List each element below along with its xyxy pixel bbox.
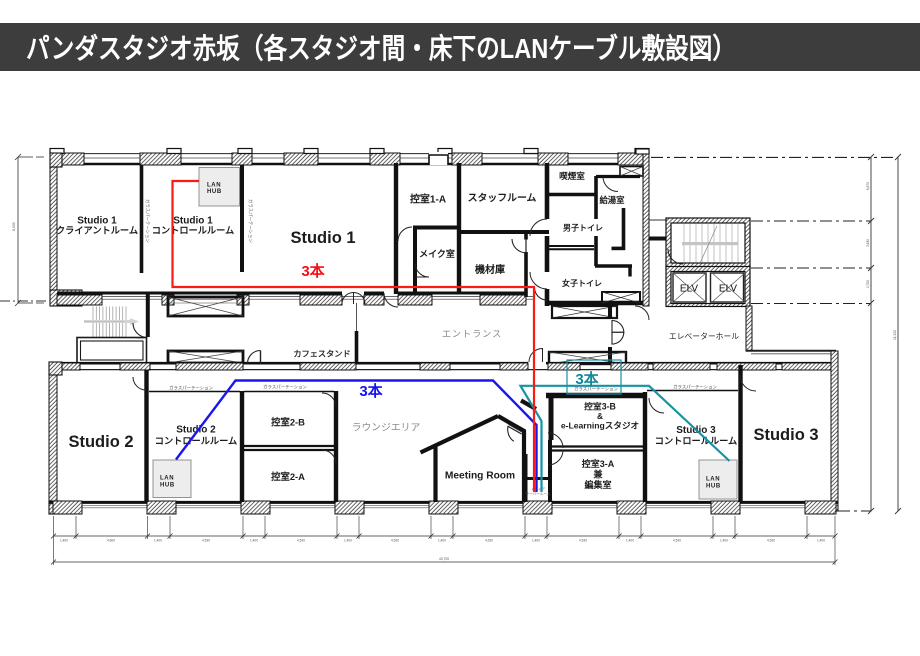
svg-text:6,870: 6,870 bbox=[866, 182, 870, 190]
svg-text:21,320: 21,320 bbox=[893, 330, 897, 340]
svg-text:4,600: 4,600 bbox=[107, 539, 115, 543]
svg-text:8,000: 8,000 bbox=[12, 222, 16, 231]
svg-text:1,400: 1,400 bbox=[720, 539, 728, 543]
svg-text:メイク室: メイク室 bbox=[419, 248, 455, 259]
svg-text:ELV: ELV bbox=[680, 284, 698, 295]
svg-text:女子トイレ: 女子トイレ bbox=[562, 278, 602, 288]
svg-text:4,530: 4,530 bbox=[391, 539, 399, 543]
svg-text:サーバールーム: サーバールーム bbox=[525, 491, 550, 496]
svg-text:控室2-B: 控室2-B bbox=[271, 417, 305, 428]
svg-text:編集室: 編集室 bbox=[584, 479, 611, 490]
svg-text:LAN: LAN bbox=[706, 477, 720, 483]
svg-text:控室3-B: 控室3-B bbox=[584, 401, 616, 412]
svg-text:ELV: ELV bbox=[719, 284, 737, 295]
svg-text:コントロールルーム: コントロールルーム bbox=[655, 436, 737, 446]
svg-text:1,400: 1,400 bbox=[60, 539, 68, 543]
svg-text:4,530: 4,530 bbox=[579, 539, 587, 543]
svg-text:ガラスパーテーション: ガラスパーテーション bbox=[247, 199, 254, 243]
svg-text:4,530: 4,530 bbox=[202, 539, 210, 543]
svg-text:1,400: 1,400 bbox=[344, 539, 352, 543]
svg-text:3本: 3本 bbox=[301, 262, 324, 280]
svg-text:男子トイレ: 男子トイレ bbox=[563, 224, 603, 233]
svg-text:パンダスタジオ赤坂（各スタジオ間・床下のLANケーブル敷設図: パンダスタジオ赤坂（各スタジオ間・床下のLANケーブル敷設図） bbox=[26, 32, 736, 64]
svg-text:1,400: 1,400 bbox=[250, 539, 258, 543]
svg-text:ガラスパーテーション: ガラスパーテーション bbox=[144, 199, 151, 243]
svg-text:3本: 3本 bbox=[359, 382, 382, 400]
svg-text:控室2-A: 控室2-A bbox=[271, 471, 305, 482]
svg-text:コントロールルーム: コントロールルーム bbox=[152, 226, 234, 236]
svg-text:1,400: 1,400 bbox=[438, 539, 446, 543]
svg-text:Meeting Room: Meeting Room bbox=[445, 471, 515, 482]
svg-text:e-Learningスタジオ: e-Learningスタジオ bbox=[561, 420, 639, 431]
svg-text:給湯室: 給湯室 bbox=[599, 195, 625, 205]
svg-text:3本: 3本 bbox=[575, 370, 598, 388]
svg-text:1,400: 1,400 bbox=[532, 539, 540, 543]
svg-text:LAN: LAN bbox=[160, 476, 174, 482]
svg-text:43,700: 43,700 bbox=[439, 557, 449, 561]
svg-text:ラウンジエリア: ラウンジエリア bbox=[352, 422, 421, 434]
svg-text:4,530: 4,530 bbox=[485, 539, 493, 543]
svg-text:Studio 3: Studio 3 bbox=[753, 426, 818, 444]
svg-text:1,400: 1,400 bbox=[154, 539, 162, 543]
svg-text:4,530: 4,530 bbox=[673, 539, 681, 543]
svg-text:カフェスタンド: カフェスタンド bbox=[293, 349, 350, 359]
svg-text:Studio 1: Studio 1 bbox=[290, 229, 355, 247]
svg-text:コントロールルーム: コントロールルーム bbox=[155, 436, 237, 446]
svg-text:2,700: 2,700 bbox=[866, 280, 870, 288]
svg-text:ガラスパーテーション: ガラスパーテーション bbox=[169, 385, 213, 392]
svg-text:ガラスパーテーション: ガラスパーテーション bbox=[263, 384, 307, 391]
svg-text:HUB: HUB bbox=[160, 483, 175, 489]
svg-text:&: & bbox=[597, 411, 603, 421]
svg-text:機材庫: 機材庫 bbox=[475, 263, 505, 276]
svg-text:1,400: 1,400 bbox=[817, 539, 825, 543]
svg-text:スタッフルーム: スタッフルーム bbox=[468, 192, 537, 204]
svg-text:エントランス: エントランス bbox=[442, 329, 502, 339]
svg-text:兼: 兼 bbox=[592, 469, 603, 480]
svg-text:Studio 2: Studio 2 bbox=[68, 433, 133, 451]
svg-text:HUB: HUB bbox=[207, 189, 222, 195]
svg-text:3,630: 3,630 bbox=[866, 239, 870, 247]
svg-text:エレベーターホール: エレベーターホール bbox=[669, 332, 739, 341]
svg-text:クライアントルーム: クライアントルーム bbox=[56, 226, 138, 236]
svg-text:控室1-A: 控室1-A bbox=[410, 193, 446, 206]
svg-text:ガラスパーテーション: ガラスパーテーション bbox=[673, 384, 717, 391]
svg-text:4,530: 4,530 bbox=[767, 539, 775, 543]
svg-text:喫煙室: 喫煙室 bbox=[559, 170, 585, 181]
svg-text:HUB: HUB bbox=[706, 484, 721, 490]
svg-text:控室3-A: 控室3-A bbox=[582, 458, 615, 469]
svg-text:1,400: 1,400 bbox=[626, 539, 634, 543]
svg-text:4,530: 4,530 bbox=[297, 539, 305, 543]
svg-text:LAN: LAN bbox=[207, 183, 221, 189]
